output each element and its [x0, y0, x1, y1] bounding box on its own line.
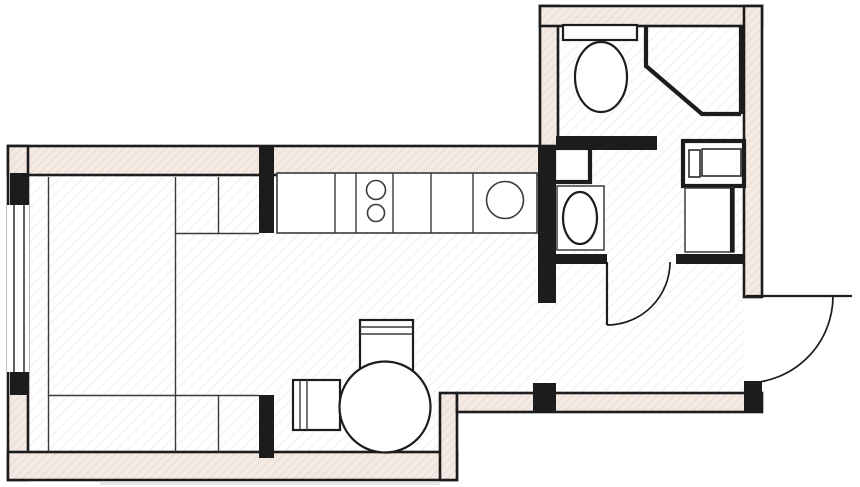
partition-stub-lower — [259, 395, 274, 458]
toilet-tank — [563, 25, 637, 40]
wall-step — [440, 393, 457, 480]
kitchen-sink — [487, 182, 524, 219]
round-dining-table — [340, 362, 431, 453]
floor-bath-doorway — [607, 252, 676, 264]
floor-entry-hall — [556, 264, 744, 393]
wall-hall-bottom — [457, 393, 762, 412]
partition-bath-door-right — [676, 254, 744, 264]
bath-cabinet — [685, 188, 734, 252]
floor-plan-canvas — [0, 0, 860, 487]
wall-bottom-left — [8, 452, 457, 480]
window-pier-top — [10, 173, 28, 205]
toilet-bowl — [575, 42, 627, 112]
wall-entry-corner — [744, 381, 762, 412]
wall-top — [8, 146, 556, 175]
cooktop-burner-top — [367, 181, 386, 200]
wall-bathroom-top — [540, 6, 762, 26]
partition-stub-upper — [259, 146, 274, 233]
washing-machine — [683, 141, 744, 186]
bottom-shadow — [100, 481, 440, 485]
wall-bathroom-right — [744, 6, 762, 297]
entrance-door-swing-arc — [746, 296, 833, 383]
partition-hall-stub — [533, 383, 556, 412]
window-opening — [7, 205, 29, 372]
service-niche — [554, 148, 590, 182]
window-pier-bottom — [10, 372, 28, 395]
cooktop-burner-bottom — [368, 205, 385, 222]
vanity-sink — [563, 192, 597, 244]
partition-bath-door-left — [556, 254, 607, 264]
floor-passage — [537, 303, 556, 383]
plan-svg — [0, 0, 860, 487]
